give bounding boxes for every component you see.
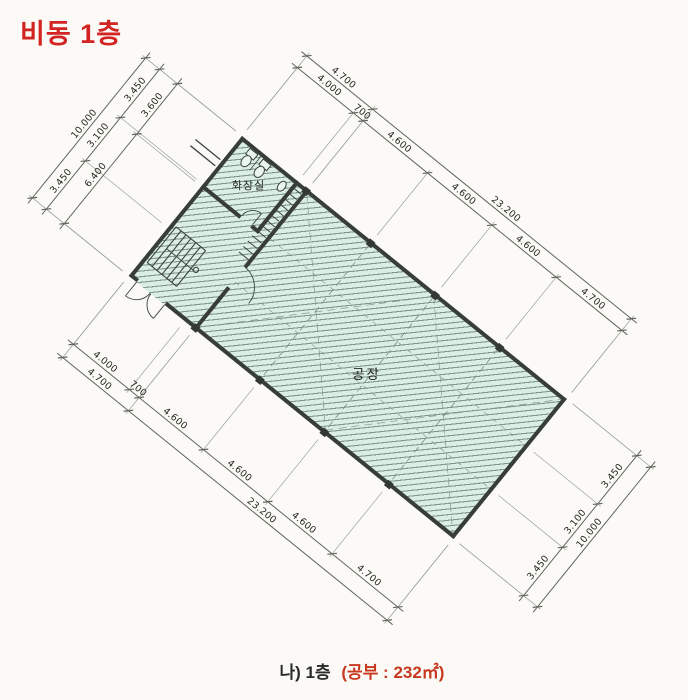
figure-caption: 나) 1층 (공부 : 232㎡)	[280, 658, 445, 683]
exterior-stoop	[190, 146, 215, 166]
exterior-stoop	[195, 139, 220, 159]
extension-lines	[0, 0, 688, 694]
room-label-factory: 공장	[352, 363, 381, 383]
caption-floor: 나) 1층	[280, 663, 331, 682]
scanned-floor-plan-page: 비동 1층 4.0007004.6004.6004.6004.7004.7002…	[0, 0, 688, 700]
dimension-labels: 4.0007004.6004.6004.6004.7004.70023.2004…	[0, 0, 688, 688]
dimension-label: 23.200	[489, 194, 523, 224]
dimension-label: 23.200	[245, 496, 279, 526]
room-label-toilet: 화장실	[232, 177, 265, 193]
page-title: 비동 1층	[20, 12, 122, 51]
floor-plan: 4.0007004.6004.6004.6004.7004.70023.2004…	[129, 136, 567, 539]
dimension-chain	[0, 0, 688, 693]
caption-area: (공부 : 232㎡)	[341, 663, 444, 682]
